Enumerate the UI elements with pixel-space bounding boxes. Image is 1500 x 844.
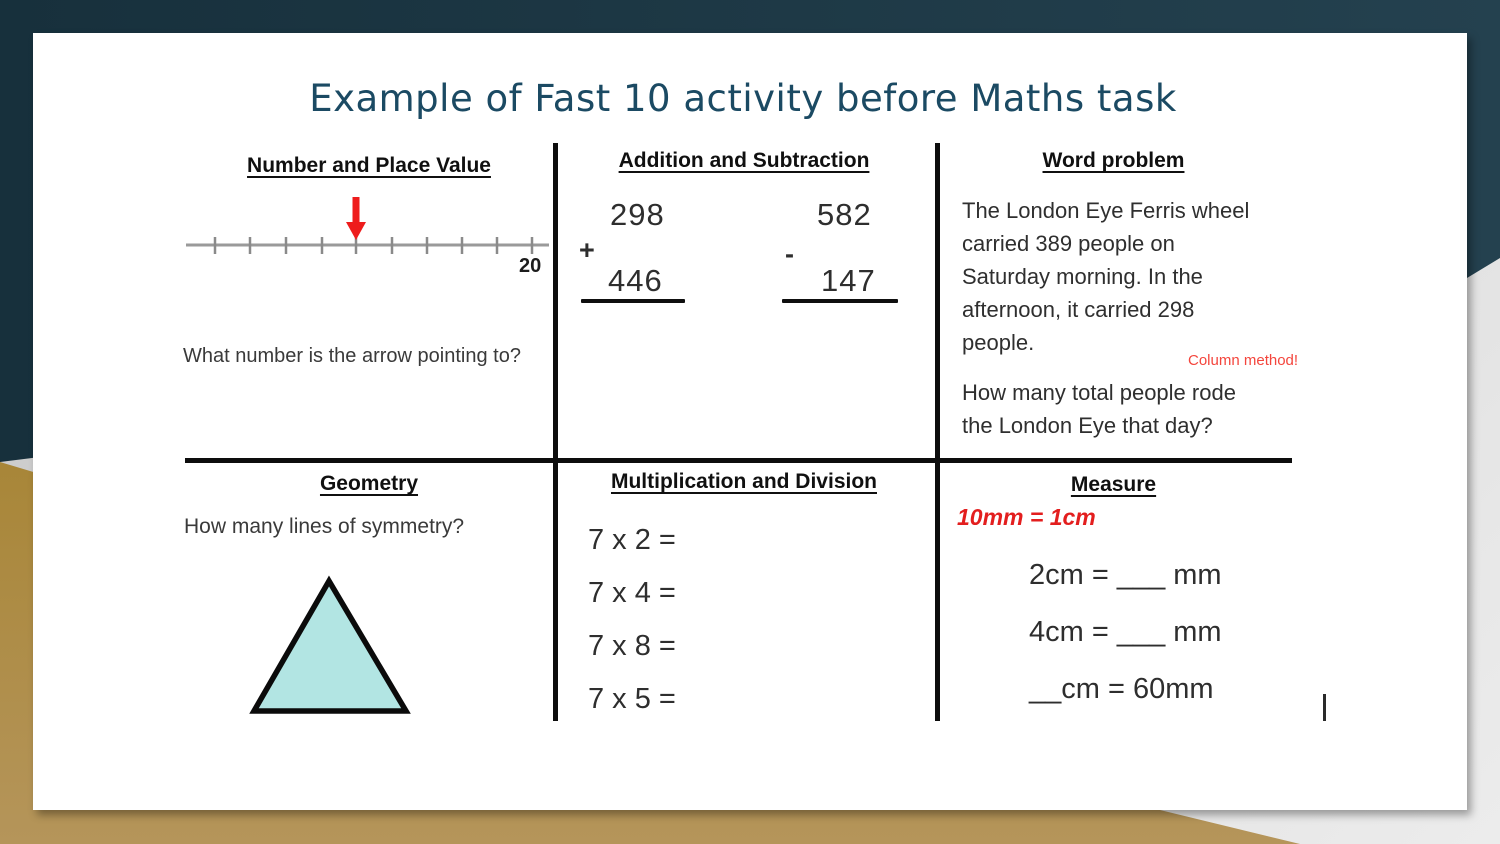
multiplication-problem: 7 x 5 =	[588, 673, 676, 726]
slide-title: Example of Fast 10 activity before Maths…	[33, 77, 1453, 120]
subtraction-operator: -	[785, 239, 794, 270]
section-header-number-place-value: Number and Place Value	[185, 154, 553, 178]
number-line-question: What number is the arrow pointing to?	[183, 345, 521, 368]
number-line	[183, 191, 555, 265]
section-header-addition-subtraction: Addition and Subtraction	[553, 149, 935, 173]
red-arrow-icon	[346, 197, 366, 240]
multiplication-problem: 7 x 2 =	[588, 514, 676, 567]
measure-problem-list: 2cm = ___ mm 4cm = ___ mm __cm = 60mm	[1029, 547, 1222, 718]
geometry-question: How many lines of symmetry?	[184, 515, 464, 539]
multiplication-problem: 7 x 4 =	[588, 567, 676, 620]
screen: Example of Fast 10 activity before Maths…	[0, 0, 1500, 844]
slide[interactable]: Example of Fast 10 activity before Maths…	[33, 33, 1467, 810]
vertical-divider-right	[935, 143, 940, 721]
horizontal-divider	[185, 458, 1292, 463]
triangle-shape	[246, 573, 414, 719]
section-header-word-problem: Word problem	[935, 149, 1292, 173]
measure-problem: 4cm = ___ mm	[1029, 604, 1222, 661]
word-problem-body: The London Eye Ferris wheel carried 389 …	[962, 194, 1332, 359]
addition-operator: +	[579, 235, 595, 266]
addition-bottom-number: 446	[608, 263, 663, 299]
addition-top-number: 298	[610, 197, 665, 233]
subtraction-answer-line	[782, 299, 898, 303]
section-header-multiplication-division: Multiplication and Division	[553, 470, 935, 494]
section-header-measure: Measure	[935, 473, 1292, 497]
subtraction-top-number: 582	[817, 197, 872, 233]
subtraction-bottom-number: 147	[821, 263, 876, 299]
word-problem-hint: Column method!	[1188, 352, 1298, 369]
section-header-geometry: Geometry	[185, 472, 553, 496]
word-problem-question: How many total people rode the London Ey…	[962, 376, 1332, 442]
number-line-end-label: 20	[519, 255, 541, 278]
measure-problem: __cm = 60mm	[1029, 661, 1222, 718]
measure-problem: 2cm = ___ mm	[1029, 547, 1222, 604]
multiplication-problem-list: 7 x 2 = 7 x 4 = 7 x 8 = 7 x 5 =	[588, 514, 676, 726]
addition-answer-line	[581, 299, 685, 303]
multiplication-problem: 7 x 8 =	[588, 620, 676, 673]
text-caret	[1323, 694, 1326, 721]
measure-fact: 10mm = 1cm	[957, 504, 1096, 531]
